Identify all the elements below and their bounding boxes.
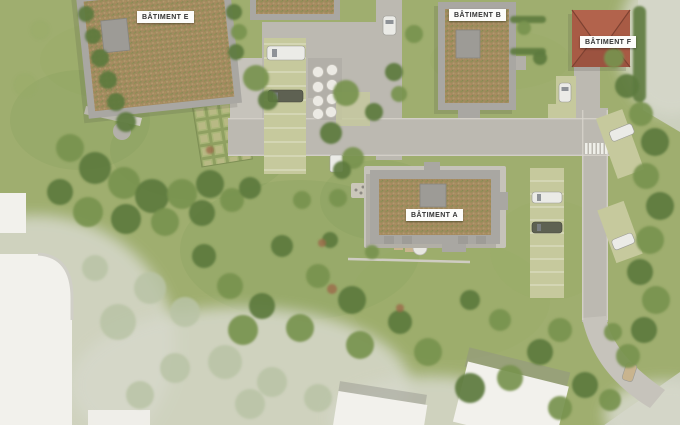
label-batiment-a: BÂTIMENT A xyxy=(406,209,463,221)
rooftop-structure xyxy=(101,18,130,53)
label-batiment-b: BÂTIMENT B xyxy=(449,9,506,21)
site-plan-rendering xyxy=(0,0,680,425)
courtyard-core xyxy=(456,30,480,58)
label-batiment-e: BÂTIMENT E xyxy=(137,11,194,23)
building-top-middle xyxy=(250,0,340,20)
neighbour-building xyxy=(0,254,72,425)
car xyxy=(267,46,305,60)
site-plan-image: BÂTIMENT E BÂTIMENT B BÂTIMENT F BÂTIMEN… xyxy=(0,0,680,425)
neighbour-building xyxy=(0,193,26,233)
car xyxy=(383,16,396,35)
label-batiment-f: BÂTIMENT F xyxy=(580,36,636,48)
car xyxy=(532,222,562,233)
car xyxy=(532,192,562,203)
neighbour-building xyxy=(88,410,150,425)
building-batiment-a xyxy=(364,162,508,252)
courtyard-core xyxy=(420,184,446,207)
car xyxy=(559,83,571,102)
